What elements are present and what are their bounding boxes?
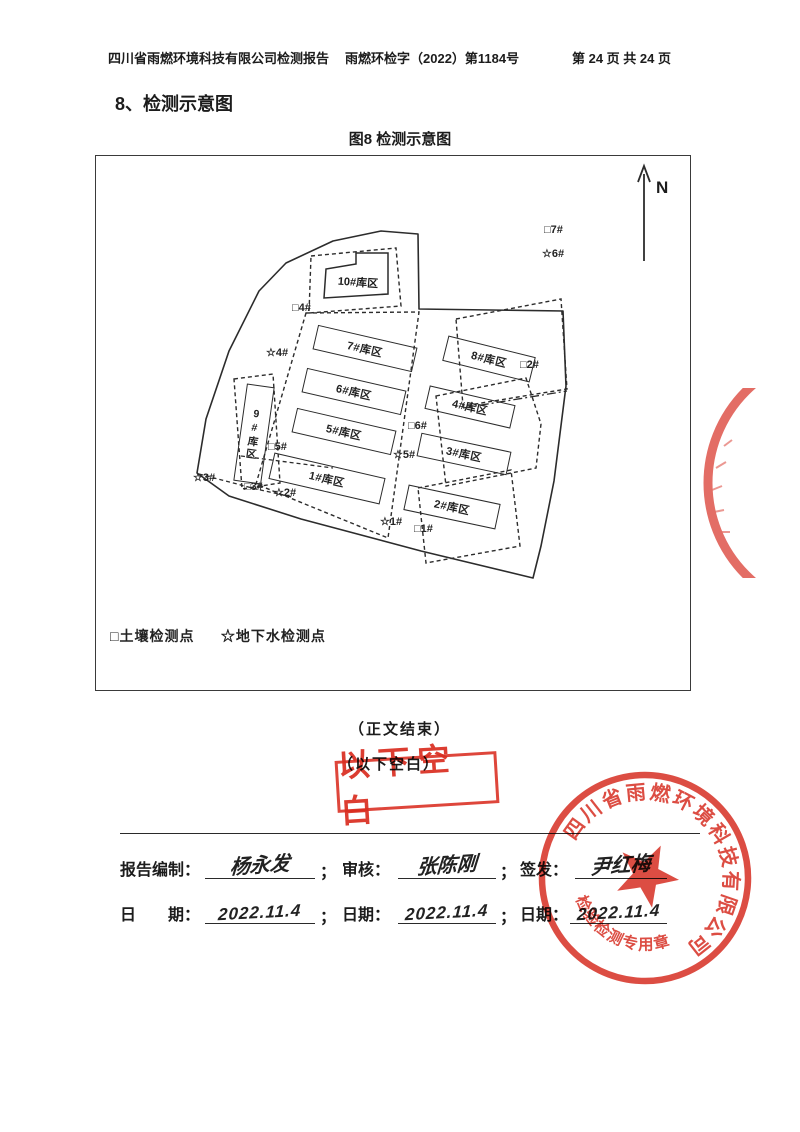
soil-point-7: □7#	[544, 224, 563, 236]
separator-4: ；	[500, 903, 516, 927]
soil-point-6: □6#	[408, 420, 427, 432]
building-10-label: 10#库区	[327, 270, 388, 294]
reviewed-by-handwriting: 张陈刚	[416, 847, 478, 880]
report-page: { "header": { "left": "四川省雨燃环境科技有限公司检测报告…	[0, 0, 800, 1132]
diagram-frame: N 10#库区 7#库区 8#库区 6#库区 4#库区 5#库区 3#库区 1#…	[95, 155, 691, 691]
soil-point-1: □1#	[414, 523, 433, 535]
header-report-title: 四川省雨燃环境科技有限公司检测报告	[108, 48, 329, 67]
soil-point-2: □2#	[520, 359, 539, 371]
header-page-number: 第 24 页 共 24 页	[572, 48, 671, 67]
reviewed-by-label: 审核：	[342, 856, 390, 880]
soil-point-3: □3#	[244, 481, 263, 493]
date-2-value: 2022.11.4	[398, 893, 496, 924]
company-seal: 四川省雨燃环境科技有限公司 检验检测专用章	[530, 763, 760, 993]
separator-1: ；	[320, 858, 336, 882]
date-1-handwriting: 2022.11.4	[218, 901, 302, 925]
partial-edge-seal	[686, 388, 800, 578]
north-label: N	[656, 178, 668, 198]
blank-below-stamp: 以下空白	[335, 751, 500, 813]
north-arrow-icon	[638, 166, 650, 261]
date-2-label: 日期：	[342, 901, 390, 925]
seal-star-icon	[606, 832, 689, 913]
groundwater-point-3: ☆3#	[193, 471, 215, 484]
end-of-text: （正文结束）	[0, 718, 800, 739]
groundwater-point-1: ☆1#	[380, 515, 402, 528]
reviewed-by-signature: 张陈刚	[398, 844, 496, 879]
date-1-value: 2022.11.4	[205, 893, 315, 924]
legend-soil: □土壤检测点	[110, 628, 194, 644]
groundwater-point-4: ☆4#	[266, 346, 288, 359]
site-plan-linework	[96, 156, 690, 690]
date-1-label: 日 期：	[120, 901, 200, 925]
soil-point-4: □4#	[292, 302, 311, 314]
prepared-by-signature: 杨永发	[205, 846, 315, 879]
prepared-by-handwriting: 杨永发	[229, 847, 291, 880]
legend-groundwater: ☆地下水检测点	[221, 628, 326, 644]
date-2-handwriting: 2022.11.4	[405, 901, 489, 925]
prepared-by-label: 报告编制：	[120, 856, 200, 880]
groundwater-point-6: ☆6#	[542, 247, 564, 260]
groundwater-point-5: ☆5#	[393, 448, 415, 461]
header-doc-number: 雨燃环检字（2022）第1184号	[345, 48, 519, 67]
section-title: 8、检测示意图	[115, 90, 233, 116]
soil-point-5: □5#	[268, 441, 287, 453]
separator-3: ；	[320, 903, 336, 927]
legend: □土壤检测点 ☆地下水检测点	[110, 626, 326, 646]
groundwater-point-2: ☆2#	[274, 486, 296, 499]
separator-2: ；	[500, 858, 516, 882]
figure-caption: 图8 检测示意图	[0, 128, 800, 149]
